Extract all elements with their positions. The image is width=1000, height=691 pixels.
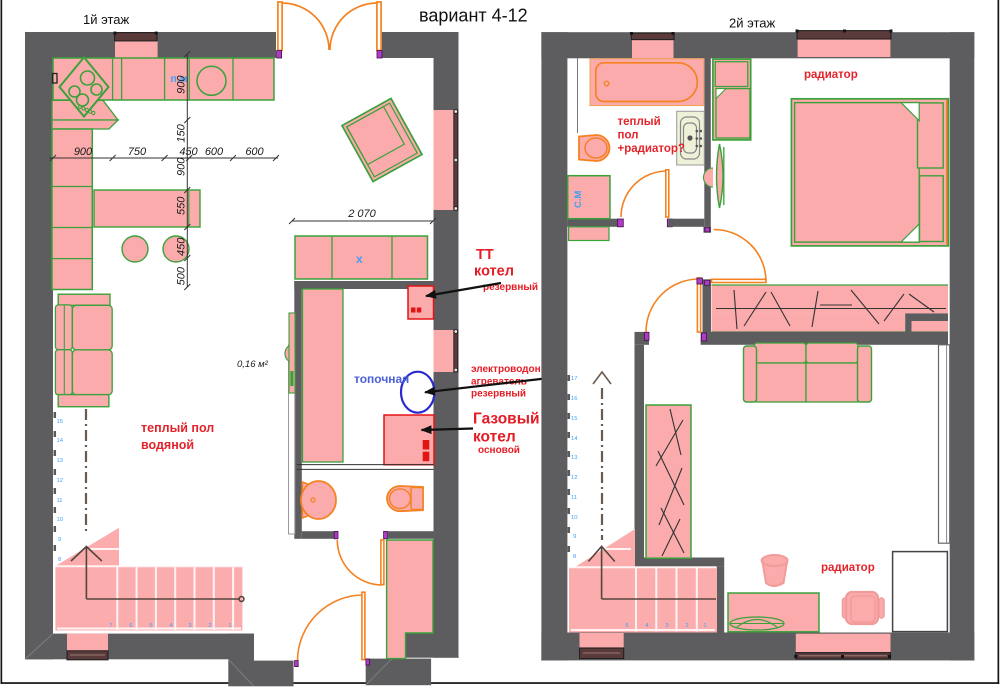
svg-text:котел: котел <box>473 429 516 446</box>
svg-text:Газовый: Газовый <box>473 411 539 428</box>
svg-text:12: 12 <box>57 478 63 484</box>
svg-text:3: 3 <box>665 623 668 629</box>
svg-text:пол: пол <box>618 130 639 142</box>
svg-text:вариант 4-12: вариант 4-12 <box>419 6 528 26</box>
svg-text:радиатор: радиатор <box>821 562 875 574</box>
svg-text:150: 150 <box>176 123 188 142</box>
svg-text:600: 600 <box>205 146 224 158</box>
svg-text:топочная: топочная <box>354 372 409 386</box>
svg-text:1: 1 <box>228 623 231 629</box>
svg-text:14: 14 <box>57 438 64 444</box>
svg-text:14: 14 <box>571 436 578 442</box>
svg-text:5: 5 <box>149 623 152 629</box>
svg-text:15: 15 <box>57 419 63 425</box>
svg-text:6: 6 <box>129 623 132 629</box>
svg-text:450: 450 <box>176 237 188 256</box>
svg-text:радиатор: радиатор <box>804 69 858 81</box>
svg-text:2: 2 <box>685 623 688 629</box>
svg-text:900: 900 <box>176 75 188 94</box>
svg-text:17: 17 <box>571 376 577 382</box>
svg-text:9: 9 <box>573 534 576 540</box>
svg-text:12: 12 <box>571 475 577 481</box>
svg-text:резервный: резервный <box>471 389 526 400</box>
svg-text:13: 13 <box>57 458 63 464</box>
svg-text:ТТ: ТТ <box>476 247 494 263</box>
svg-text:900: 900 <box>74 146 93 158</box>
svg-text:1: 1 <box>703 623 706 629</box>
svg-text:450: 450 <box>179 146 198 158</box>
svg-text:основой: основой <box>478 445 520 456</box>
svg-text:водяной: водяной <box>141 438 194 452</box>
svg-text:11: 11 <box>57 498 63 504</box>
svg-text:10: 10 <box>57 517 63 523</box>
svg-text:2й этаж: 2й этаж <box>729 16 775 31</box>
svg-text:x: x <box>356 252 363 266</box>
svg-text:2 070: 2 070 <box>347 208 376 220</box>
svg-text:теплый пол: теплый пол <box>141 421 214 435</box>
svg-text:1й этаж: 1й этаж <box>83 12 129 27</box>
svg-text:10: 10 <box>571 515 577 521</box>
svg-text:5: 5 <box>625 623 628 629</box>
svg-text:900: 900 <box>176 157 188 176</box>
svg-text:8: 8 <box>573 554 576 560</box>
svg-text:11: 11 <box>571 495 577 501</box>
svg-text:600: 600 <box>245 146 264 158</box>
svg-text:электроводон: электроводон <box>471 364 541 375</box>
svg-text:С.М: С.М <box>573 191 584 209</box>
svg-text:котел: котел <box>474 264 514 280</box>
svg-text:9: 9 <box>58 537 61 543</box>
svg-text:550: 550 <box>176 196 188 215</box>
svg-text:16: 16 <box>571 396 577 402</box>
svg-text:750: 750 <box>128 146 147 158</box>
svg-text:15: 15 <box>571 416 577 422</box>
svg-text:2: 2 <box>208 623 211 629</box>
svg-text:0,16 м²: 0,16 м² <box>237 359 269 370</box>
svg-text:3: 3 <box>188 623 191 629</box>
svg-text:8: 8 <box>58 557 61 563</box>
svg-text:+радиатор?: +радиатор? <box>618 143 685 155</box>
svg-text:13: 13 <box>571 455 577 461</box>
svg-text:500: 500 <box>176 266 188 285</box>
svg-text:теплый: теплый <box>618 116 661 128</box>
svg-text:7: 7 <box>109 623 112 629</box>
